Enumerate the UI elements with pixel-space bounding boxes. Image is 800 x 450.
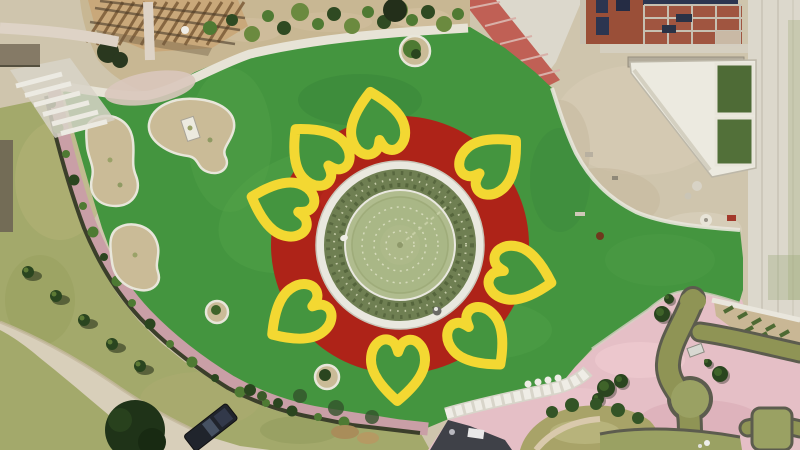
hedge-tuft bbox=[187, 357, 198, 368]
tree-highlight bbox=[599, 381, 609, 391]
hedge-tuft bbox=[69, 175, 80, 186]
mound-shrub bbox=[611, 403, 625, 417]
berm-shrub bbox=[406, 14, 418, 26]
tree-crown bbox=[106, 338, 118, 350]
water-tank-upper bbox=[716, 64, 753, 114]
bench-dot bbox=[181, 26, 189, 34]
hedge-tuft bbox=[128, 299, 136, 307]
round-tree-island-top bbox=[400, 36, 430, 66]
tree-highlight bbox=[656, 308, 664, 316]
tree-highlight bbox=[80, 316, 85, 321]
fountain-center-jet bbox=[397, 242, 403, 248]
tree-crown bbox=[78, 314, 90, 326]
tree-highlight bbox=[52, 292, 57, 297]
berm-shrub bbox=[344, 18, 360, 34]
berm-shrub bbox=[226, 14, 238, 26]
edge-wall-strip bbox=[0, 140, 13, 232]
step-white-marker bbox=[555, 375, 562, 382]
hedge-tuft bbox=[235, 387, 246, 398]
tree-highlight bbox=[616, 376, 622, 382]
mound-shrub bbox=[565, 398, 579, 412]
hedge-tuft bbox=[145, 319, 156, 330]
berm-shrub bbox=[421, 5, 435, 19]
tree-crown bbox=[50, 290, 62, 302]
mound-shrub bbox=[632, 412, 644, 424]
path-tree-shadow bbox=[328, 400, 344, 416]
hedge-tuft bbox=[62, 150, 70, 158]
tree-highlight bbox=[704, 359, 708, 363]
berm-shrub bbox=[244, 26, 260, 42]
round-tree-island-left bbox=[206, 301, 228, 323]
berm-shrub bbox=[203, 21, 217, 35]
hedge-tuft bbox=[211, 374, 219, 382]
step-white-marker bbox=[545, 377, 552, 384]
park-scene-svg bbox=[0, 0, 800, 450]
hedge-tuft bbox=[314, 413, 322, 421]
berm-shrub bbox=[277, 21, 291, 35]
tree-highlight bbox=[136, 362, 141, 367]
tree-crown bbox=[22, 266, 34, 278]
berm-shrub bbox=[327, 7, 341, 21]
aerial-park-photo bbox=[0, 0, 800, 450]
step-white-marker bbox=[525, 381, 532, 388]
berm-shrub bbox=[291, 3, 309, 21]
mound-shrub bbox=[590, 398, 602, 410]
tree-crown bbox=[134, 360, 146, 372]
autumn-shrubs bbox=[331, 425, 359, 439]
hedge-tuft bbox=[287, 406, 298, 417]
tree-highlight bbox=[714, 368, 722, 376]
berm-shrub bbox=[262, 10, 274, 22]
tree-highlight bbox=[24, 268, 29, 273]
tree-crown bbox=[664, 294, 674, 304]
berm-shrub bbox=[452, 8, 464, 20]
round-tree-island-bottom bbox=[315, 365, 339, 389]
hedge-tuft bbox=[88, 227, 99, 238]
tree-highlight bbox=[665, 295, 669, 299]
berm-shrub bbox=[436, 16, 452, 32]
tree-highlight bbox=[108, 340, 113, 345]
step-white-marker bbox=[535, 379, 542, 386]
path-tree-shadow bbox=[293, 389, 307, 403]
retaining-wall bbox=[0, 44, 40, 66]
water-tank-lower bbox=[716, 118, 753, 165]
path-tree-shadow bbox=[365, 410, 379, 424]
hedge-tuft bbox=[166, 340, 174, 348]
hedge-tuft bbox=[100, 253, 108, 261]
mound-shrub bbox=[546, 406, 558, 418]
berm-shrub bbox=[312, 18, 324, 30]
berm-shrub bbox=[362, 6, 374, 18]
hedge-tuft bbox=[79, 202, 87, 210]
